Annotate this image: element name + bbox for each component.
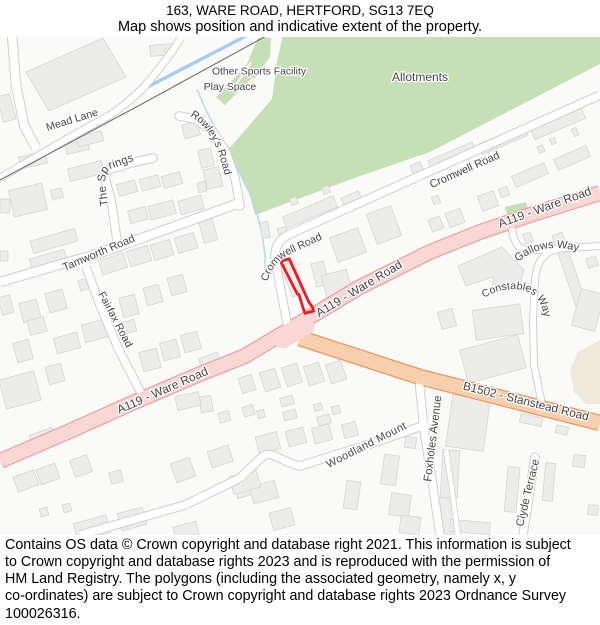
svg-text:Play Space: Play Space: [204, 82, 257, 93]
svg-text:Other Sports Facility: Other Sports Facility: [212, 67, 307, 78]
svg-text:Allotments: Allotments: [392, 70, 448, 84]
